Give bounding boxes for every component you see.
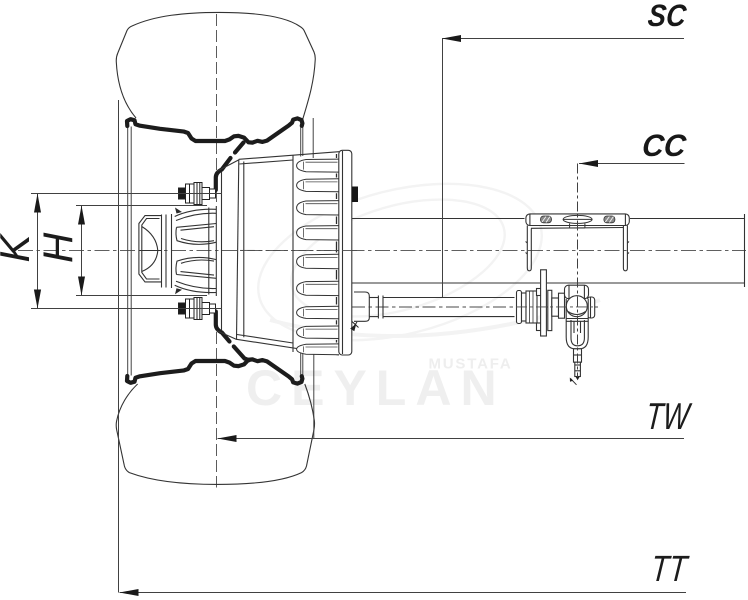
svg-text:CC: CC — [641, 129, 689, 163]
svg-text:SC: SC — [646, 0, 688, 33]
svg-text:TT: TT — [649, 549, 691, 590]
svg-text:TW: TW — [644, 396, 693, 438]
svg-text:H: H — [35, 232, 82, 263]
svg-text:CEYLAN: CEYLAN — [246, 360, 506, 416]
svg-text:K: K — [0, 233, 38, 263]
